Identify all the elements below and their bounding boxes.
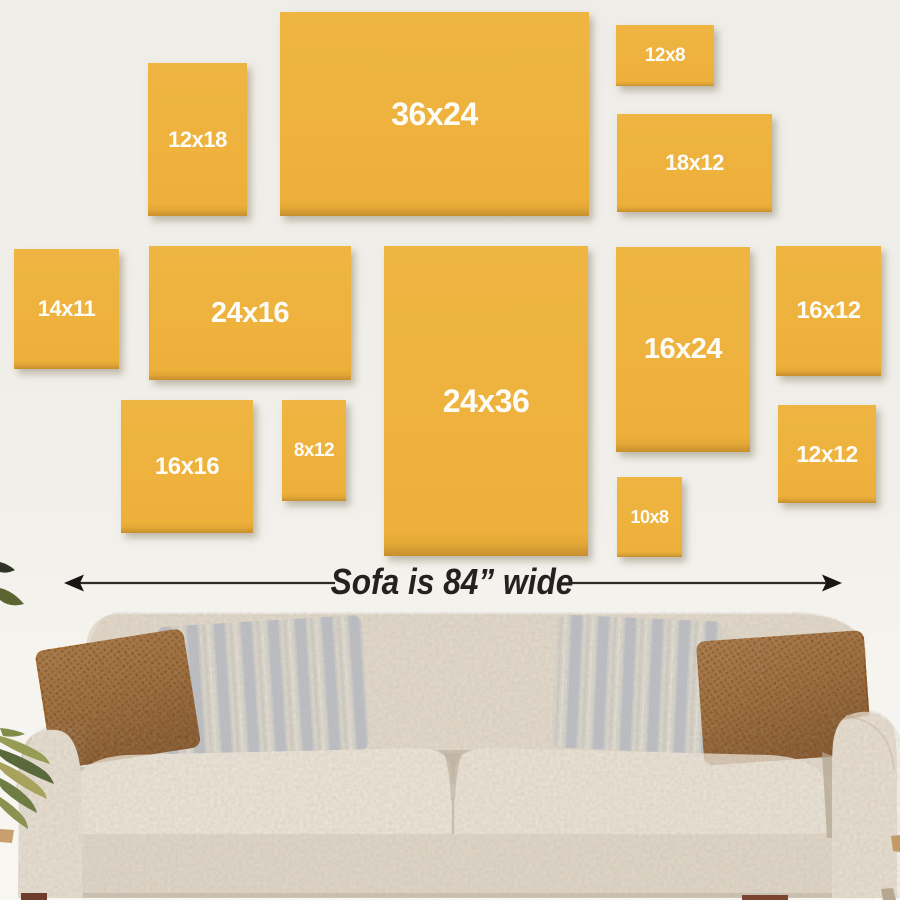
svg-text:Sofa is 84” wide: Sofa is 84” wide	[331, 562, 574, 602]
